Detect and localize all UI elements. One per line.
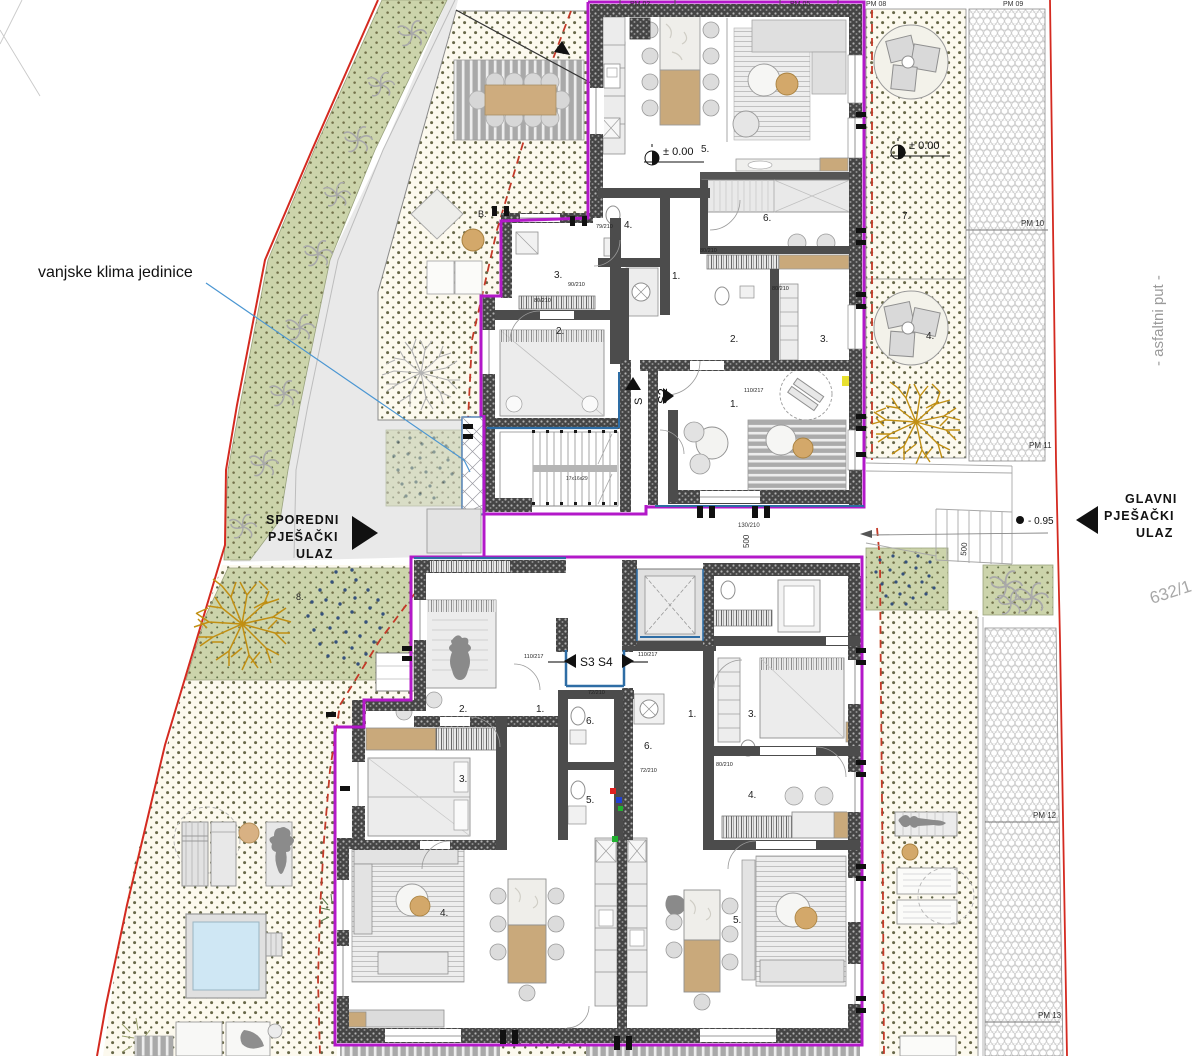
svg-text:2.: 2. bbox=[459, 704, 467, 715]
svg-text:80/210: 80/210 bbox=[534, 298, 551, 304]
svg-text:PM 09: PM 09 bbox=[1003, 1, 1023, 8]
svg-text:ULAZ: ULAZ bbox=[1136, 526, 1173, 540]
svg-text:PM 12: PM 12 bbox=[1033, 811, 1057, 820]
svg-text:PJEŠAČKI: PJEŠAČKI bbox=[268, 529, 339, 544]
svg-text:GLAVNI: GLAVNI bbox=[1125, 492, 1177, 506]
svg-text:1.: 1. bbox=[730, 399, 738, 410]
svg-text:1.: 1. bbox=[536, 704, 544, 715]
svg-text:± 0.00: ± 0.00 bbox=[663, 146, 694, 158]
svg-text:72/210: 72/210 bbox=[640, 768, 657, 774]
svg-text:PM 10: PM 10 bbox=[1021, 219, 1045, 228]
svg-text:110/217: 110/217 bbox=[524, 654, 543, 660]
svg-text:PM 05: PM 05 bbox=[790, 1, 810, 8]
svg-text:3.: 3. bbox=[554, 270, 562, 281]
svg-text:5.: 5. bbox=[701, 144, 709, 155]
svg-text:S3 S4: S3 S4 bbox=[580, 655, 613, 669]
svg-text:4.: 4. bbox=[748, 790, 756, 801]
svg-text:110/217: 110/217 bbox=[744, 388, 763, 394]
svg-text:1.: 1. bbox=[672, 271, 680, 282]
svg-text:110/217: 110/217 bbox=[638, 652, 657, 658]
svg-text:17x16x29: 17x16x29 bbox=[566, 476, 588, 482]
svg-text:5.: 5. bbox=[733, 915, 741, 926]
svg-text:SPOREDNI: SPOREDNI bbox=[266, 513, 339, 527]
svg-text:2.: 2. bbox=[730, 334, 738, 345]
svg-text:3.: 3. bbox=[459, 774, 467, 785]
svg-text:8.: 8. bbox=[296, 592, 304, 602]
svg-text:vanjske klima jedinice: vanjske klima jedinice bbox=[38, 264, 193, 281]
svg-text:ULAZ: ULAZ bbox=[296, 547, 333, 561]
svg-text:6.: 6. bbox=[763, 213, 771, 224]
svg-text:PM 11: PM 11 bbox=[1029, 441, 1052, 450]
svg-text:90/210: 90/210 bbox=[568, 282, 585, 288]
svg-text:PJEŠAČKI: PJEŠAČKI bbox=[1104, 508, 1175, 523]
svg-text:6.: 6. bbox=[586, 716, 594, 727]
svg-text:79/210: 79/210 bbox=[596, 224, 613, 230]
svg-text:PM 13: PM 13 bbox=[1038, 1011, 1062, 1020]
svg-text:1.: 1. bbox=[688, 709, 696, 720]
svg-text:4.: 4. bbox=[926, 331, 934, 342]
svg-text:80/210: 80/210 bbox=[700, 248, 717, 254]
svg-text:80/210: 80/210 bbox=[772, 286, 789, 292]
svg-text:130/210: 130/210 bbox=[738, 523, 760, 529]
svg-text:4.: 4. bbox=[440, 908, 448, 919]
svg-text:3.: 3. bbox=[820, 334, 828, 345]
svg-text:S: S bbox=[633, 398, 645, 405]
svg-text:PM 08: PM 08 bbox=[866, 1, 886, 8]
svg-text:3.: 3. bbox=[748, 709, 756, 720]
svg-text:5.: 5. bbox=[586, 795, 594, 806]
svg-text:72/210: 72/210 bbox=[588, 690, 605, 696]
svg-text:± 0.00: ± 0.00 bbox=[909, 140, 940, 152]
svg-text:80/210: 80/210 bbox=[716, 762, 733, 768]
svg-text:- asfaltni put -: - asfaltni put - bbox=[1150, 275, 1167, 366]
svg-text:- 0.95: - 0.95 bbox=[1028, 516, 1054, 527]
svg-text:PM 02: PM 02 bbox=[630, 1, 650, 8]
svg-text:500: 500 bbox=[959, 542, 969, 557]
svg-text:B.: B. bbox=[478, 209, 487, 219]
svg-text:6.: 6. bbox=[644, 741, 652, 752]
svg-text:7.: 7. bbox=[902, 211, 910, 222]
svg-text:500: 500 bbox=[742, 534, 751, 548]
svg-text:2.: 2. bbox=[556, 326, 564, 337]
svg-text:4.: 4. bbox=[624, 220, 632, 231]
